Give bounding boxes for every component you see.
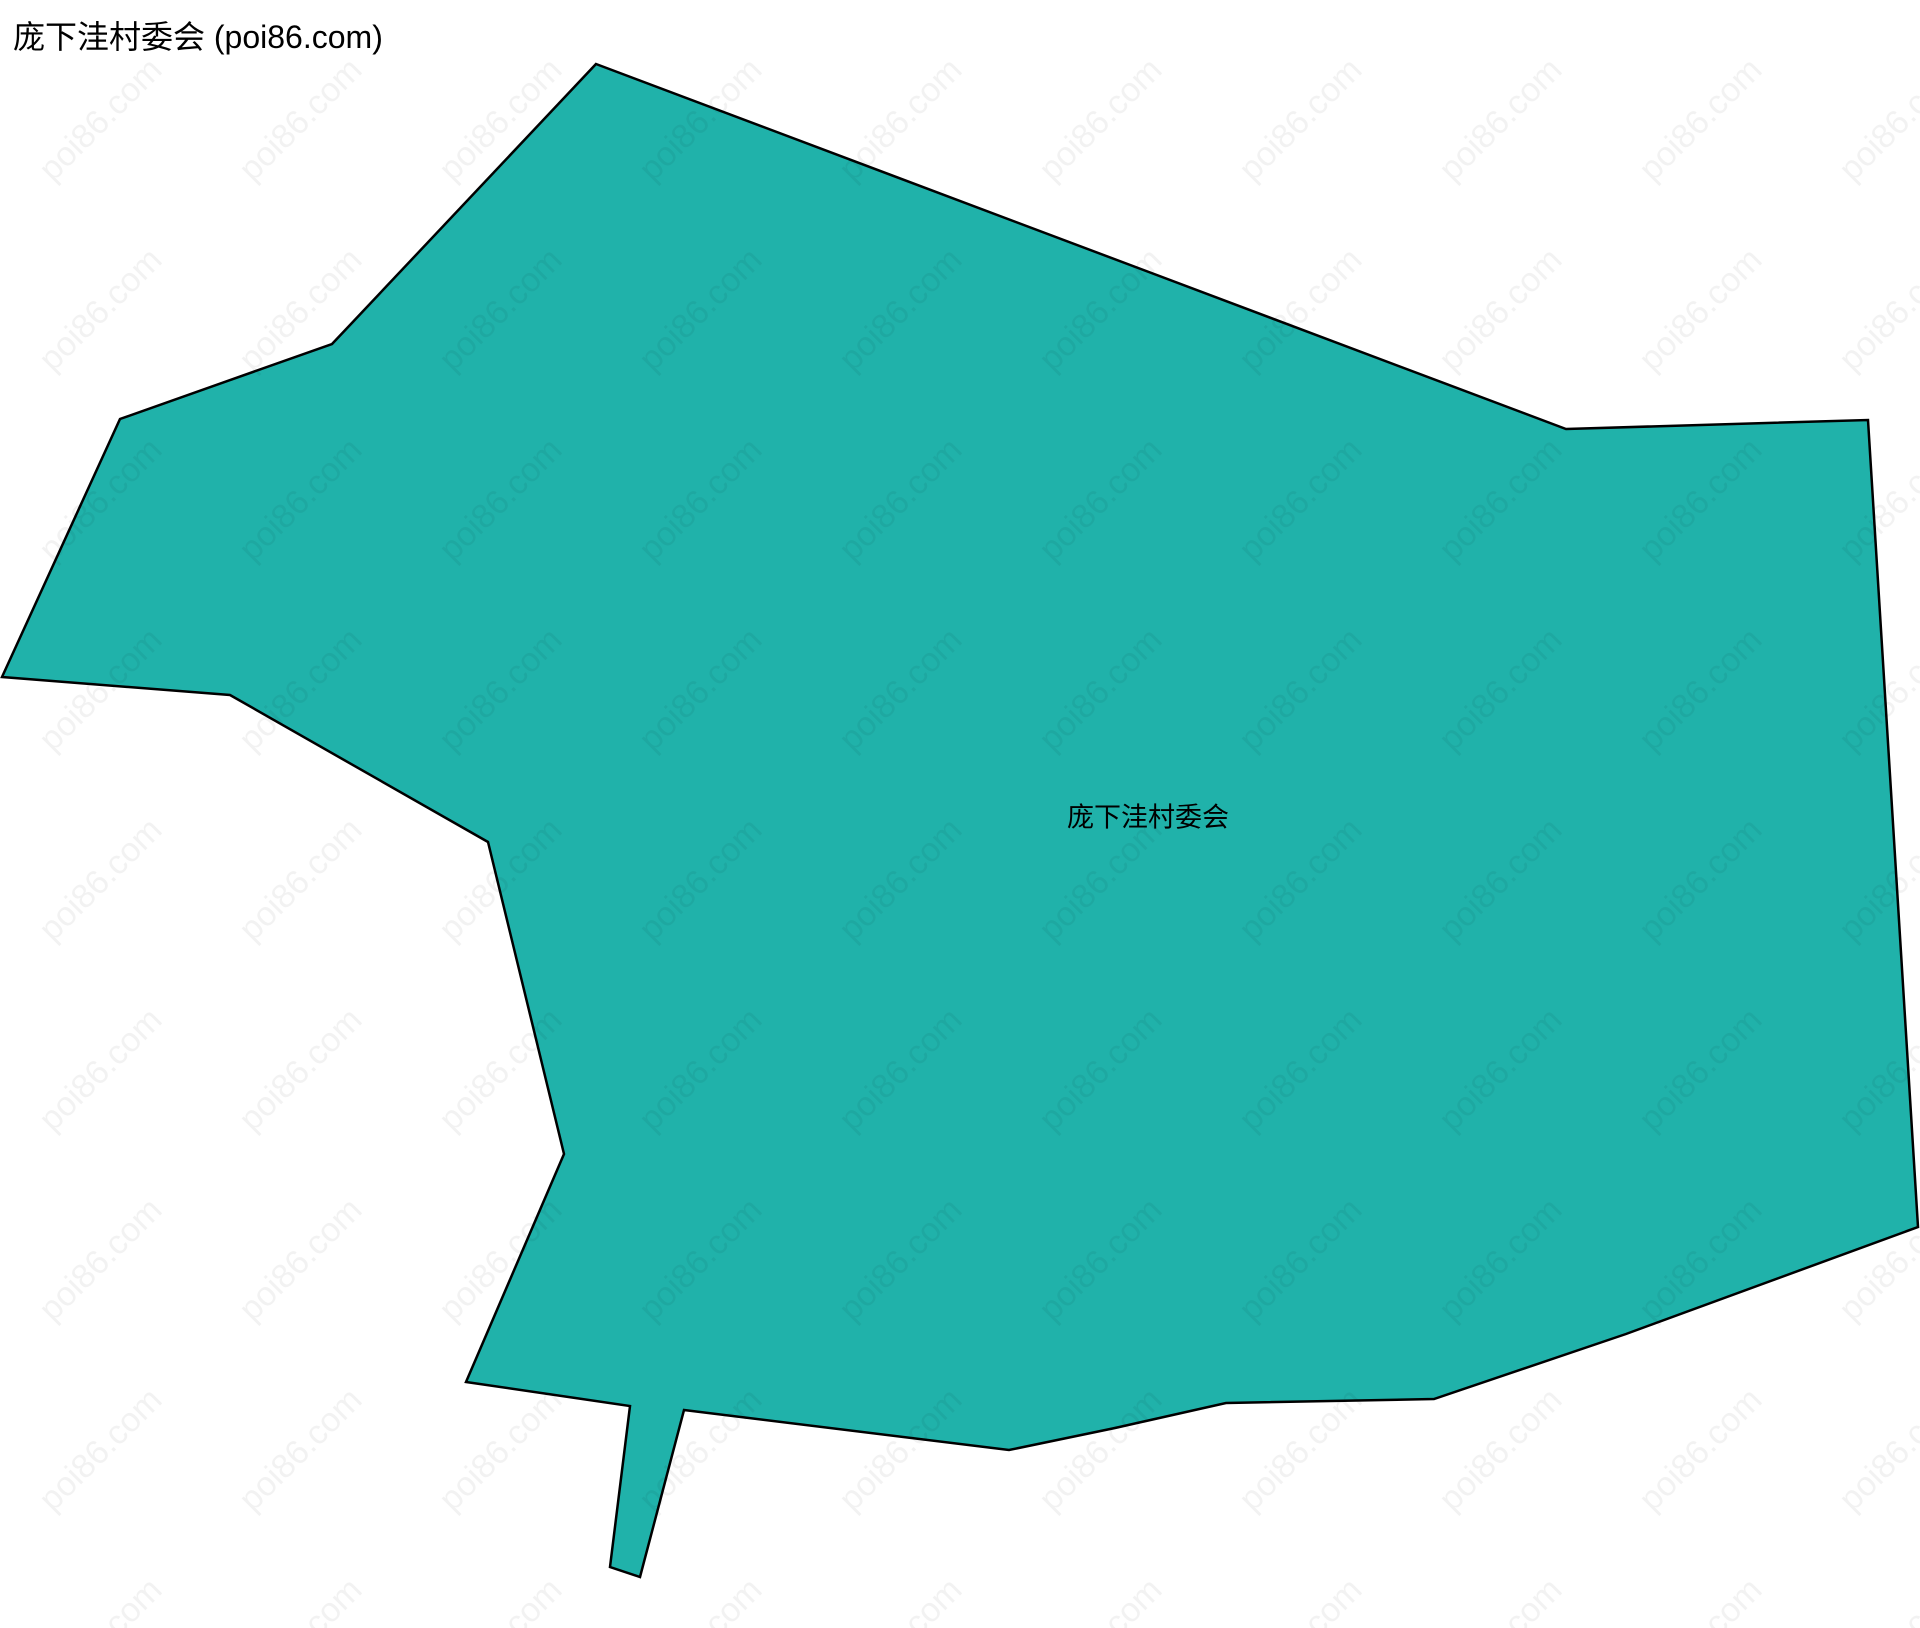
map-canvas: poi86.compoi86.compoi86.compoi86.compoi8…	[0, 0, 1920, 1628]
page-title: 庞下洼村委会 (poi86.com)	[13, 12, 383, 58]
region-shape-svg	[0, 0, 1920, 1628]
region-polygon	[2, 64, 1918, 1577]
region-label: 庞下洼村委会	[1067, 796, 1229, 835]
